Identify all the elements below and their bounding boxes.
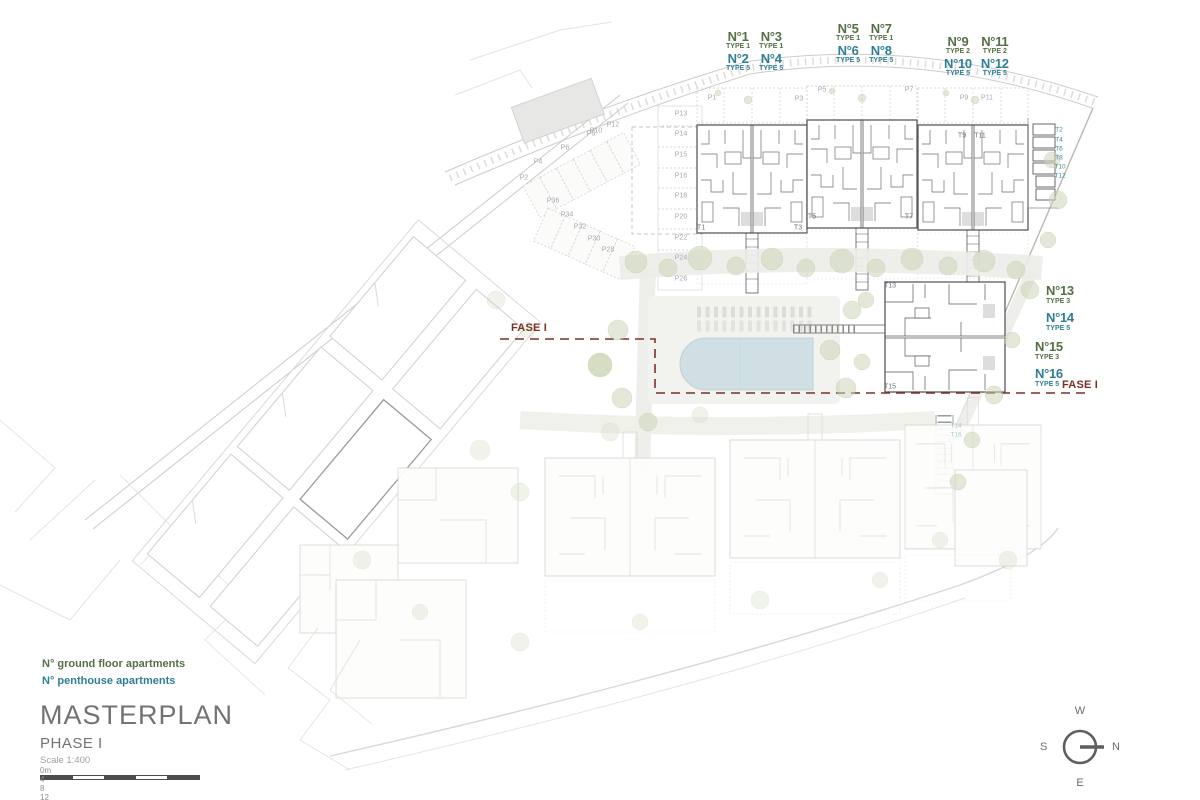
plan-label: P7 [905,87,914,94]
unit-label: N°2TYPE 5 [726,52,750,73]
unit-number: N°10 [944,57,972,70]
plan-label: P24 [675,255,687,262]
unit-label: N°5TYPE 1 [836,22,860,43]
plan-label: P34 [561,212,573,219]
unit-label: N°3TYPE 1 [759,30,783,51]
unit-type: TYPE 1 [726,43,750,51]
unit-number: N°16 [1035,367,1063,380]
fase-label: FASE I [511,322,547,334]
compass-west: W [1075,705,1085,717]
plan-label: T4 [1055,137,1063,144]
plan-label: T3 [794,225,802,232]
plan-label: T8 [1055,155,1063,162]
unit-type: TYPE 5 [981,70,1009,78]
unit-number: N°5 [836,22,860,35]
plan-label: T16 [950,432,961,439]
scale-bar: 0m48121620 [40,766,210,782]
unit-number: N°2 [726,52,750,65]
unit-label: N°7TYPE 1 [869,22,893,43]
unit-number: N°13 [1046,284,1074,297]
side-unit-label: N°16TYPE 5 [1035,367,1063,389]
plan-label: P15 [675,152,687,159]
unit-number: N°7 [869,22,893,35]
unit-number: N°4 [759,52,783,65]
plan-label: P10 [590,128,602,135]
plan-label: T11 [974,133,986,140]
unit-label: N°12TYPE 5 [981,57,1009,78]
unit-number: N°9 [944,35,972,48]
unit-label: N°6TYPE 5 [836,44,860,65]
side-unit-label: N°13TYPE 3 [1046,284,1074,306]
unit-type: TYPE 5 [836,57,860,65]
plan-label: P36 [547,198,559,205]
unit-type: TYPE 5 [759,65,783,73]
unit-label: N°8TYPE 5 [869,44,893,65]
unit-label: N°1TYPE 1 [726,30,750,51]
plan-label: P28 [602,247,614,254]
scale-tick: 4 [40,775,210,784]
scale-tick: 8 [40,784,210,793]
unit-group: N°5TYPE 1N°7TYPE 1N°6TYPE 5N°8TYPE 5 [836,22,893,65]
plan-label: T2 [1055,127,1063,134]
plan-label: P11 [981,95,993,102]
unit-number: N°8 [869,44,893,57]
plan-label: T12 [1054,173,1065,180]
unit-label: N°11TYPE 2 [981,35,1009,56]
unit-type: TYPE 5 [869,57,893,65]
unit-number: N°3 [759,30,783,43]
legend: N° ground floor apartments N° penthouse … [42,656,185,690]
unit-type: TYPE 1 [869,35,893,43]
scale-bar-ticks: 0m48121620 [40,766,210,775]
compass-east: E [1076,777,1083,789]
plan-label: T10 [1054,164,1065,171]
unit-number: N°6 [836,44,860,57]
swimming-pool [680,338,813,390]
plan-label: T7 [905,214,913,221]
unit-label: N°10TYPE 5 [944,57,972,78]
compass-north: N [1112,741,1120,753]
side-unit-label: N°14TYPE 5 [1046,311,1074,333]
plan-label: T6 [1055,146,1063,153]
masterplan-sheet: N°1TYPE 1N°3TYPE 1N°2TYPE 5N°4TYPE 5N°5T… [0,0,1200,800]
compass-rose: W S N E [1038,703,1122,791]
plan-label: P30 [588,236,600,243]
plan-label: T9 [958,133,966,140]
page-title: MASTERPLAN [40,700,233,731]
unit-type: TYPE 2 [944,48,972,56]
side-unit-label: N°15TYPE 3 [1035,340,1063,362]
legend-ground-floor: N° ground floor apartments [42,656,185,673]
unit-type: TYPE 5 [944,70,972,78]
unit-label: N°4TYPE 5 [759,52,783,73]
unit-number: N°11 [981,35,1009,48]
plan-label: P16 [675,173,687,180]
plan-label: P12 [607,122,619,129]
compass-south: S [1040,741,1047,753]
plan-label: P3 [795,96,804,103]
unit-type: TYPE 1 [836,35,860,43]
fase-label: FASE I [1062,379,1098,391]
unit-number: N°1 [726,30,750,43]
unit-type: TYPE 2 [981,48,1009,56]
plan-label: P4 [534,159,543,166]
unit-type: TYPE 5 [1035,380,1063,389]
plan-label: P13 [675,111,687,118]
unit-number: N°12 [981,57,1009,70]
scale-tick: 12 [40,793,210,800]
unit-type: TYPE 5 [1046,324,1074,333]
roof-terraces [697,86,1028,123]
plan-label: T14 [950,423,961,430]
phase-subtitle: PHASE I [40,735,103,752]
plan-label: T15 [884,384,896,391]
unit-group: N°9TYPE 2N°11TYPE 2N°10TYPE 5N°12TYPE 5 [944,35,1009,78]
unit-type: TYPE 5 [726,65,750,73]
scale-note: Scale 1:400 [40,755,90,766]
plan-label: P6 [561,145,570,152]
plan-label: T1 [697,225,705,232]
legend-penthouse: N° penthouse apartments [42,673,185,690]
unit-label: N°9TYPE 2 [944,35,972,56]
unit-group: N°1TYPE 1N°3TYPE 1N°2TYPE 5N°4TYPE 5 [726,30,783,73]
unit-type: TYPE 1 [759,43,783,51]
plan-label: P1 [708,95,717,102]
plan-label: P20 [675,214,687,221]
plan-label: P9 [960,95,969,102]
plan-label: P22 [675,235,687,242]
plan-label: P5 [818,87,827,94]
plan-label: T13 [884,283,896,290]
plan-label: P32 [574,224,586,231]
plan-label: P2 [520,175,529,182]
scale-tick: 0m [40,766,210,775]
unit-type: TYPE 3 [1035,353,1063,362]
pool-area [648,296,840,404]
plan-label: P14 [675,131,687,138]
unit-number: N°14 [1046,311,1074,324]
unit-number: N°15 [1035,340,1063,353]
plan-label: P18 [675,193,687,200]
unit-type: TYPE 3 [1046,297,1074,306]
plan-label: P26 [675,276,687,283]
plan-label: T5 [808,214,816,221]
